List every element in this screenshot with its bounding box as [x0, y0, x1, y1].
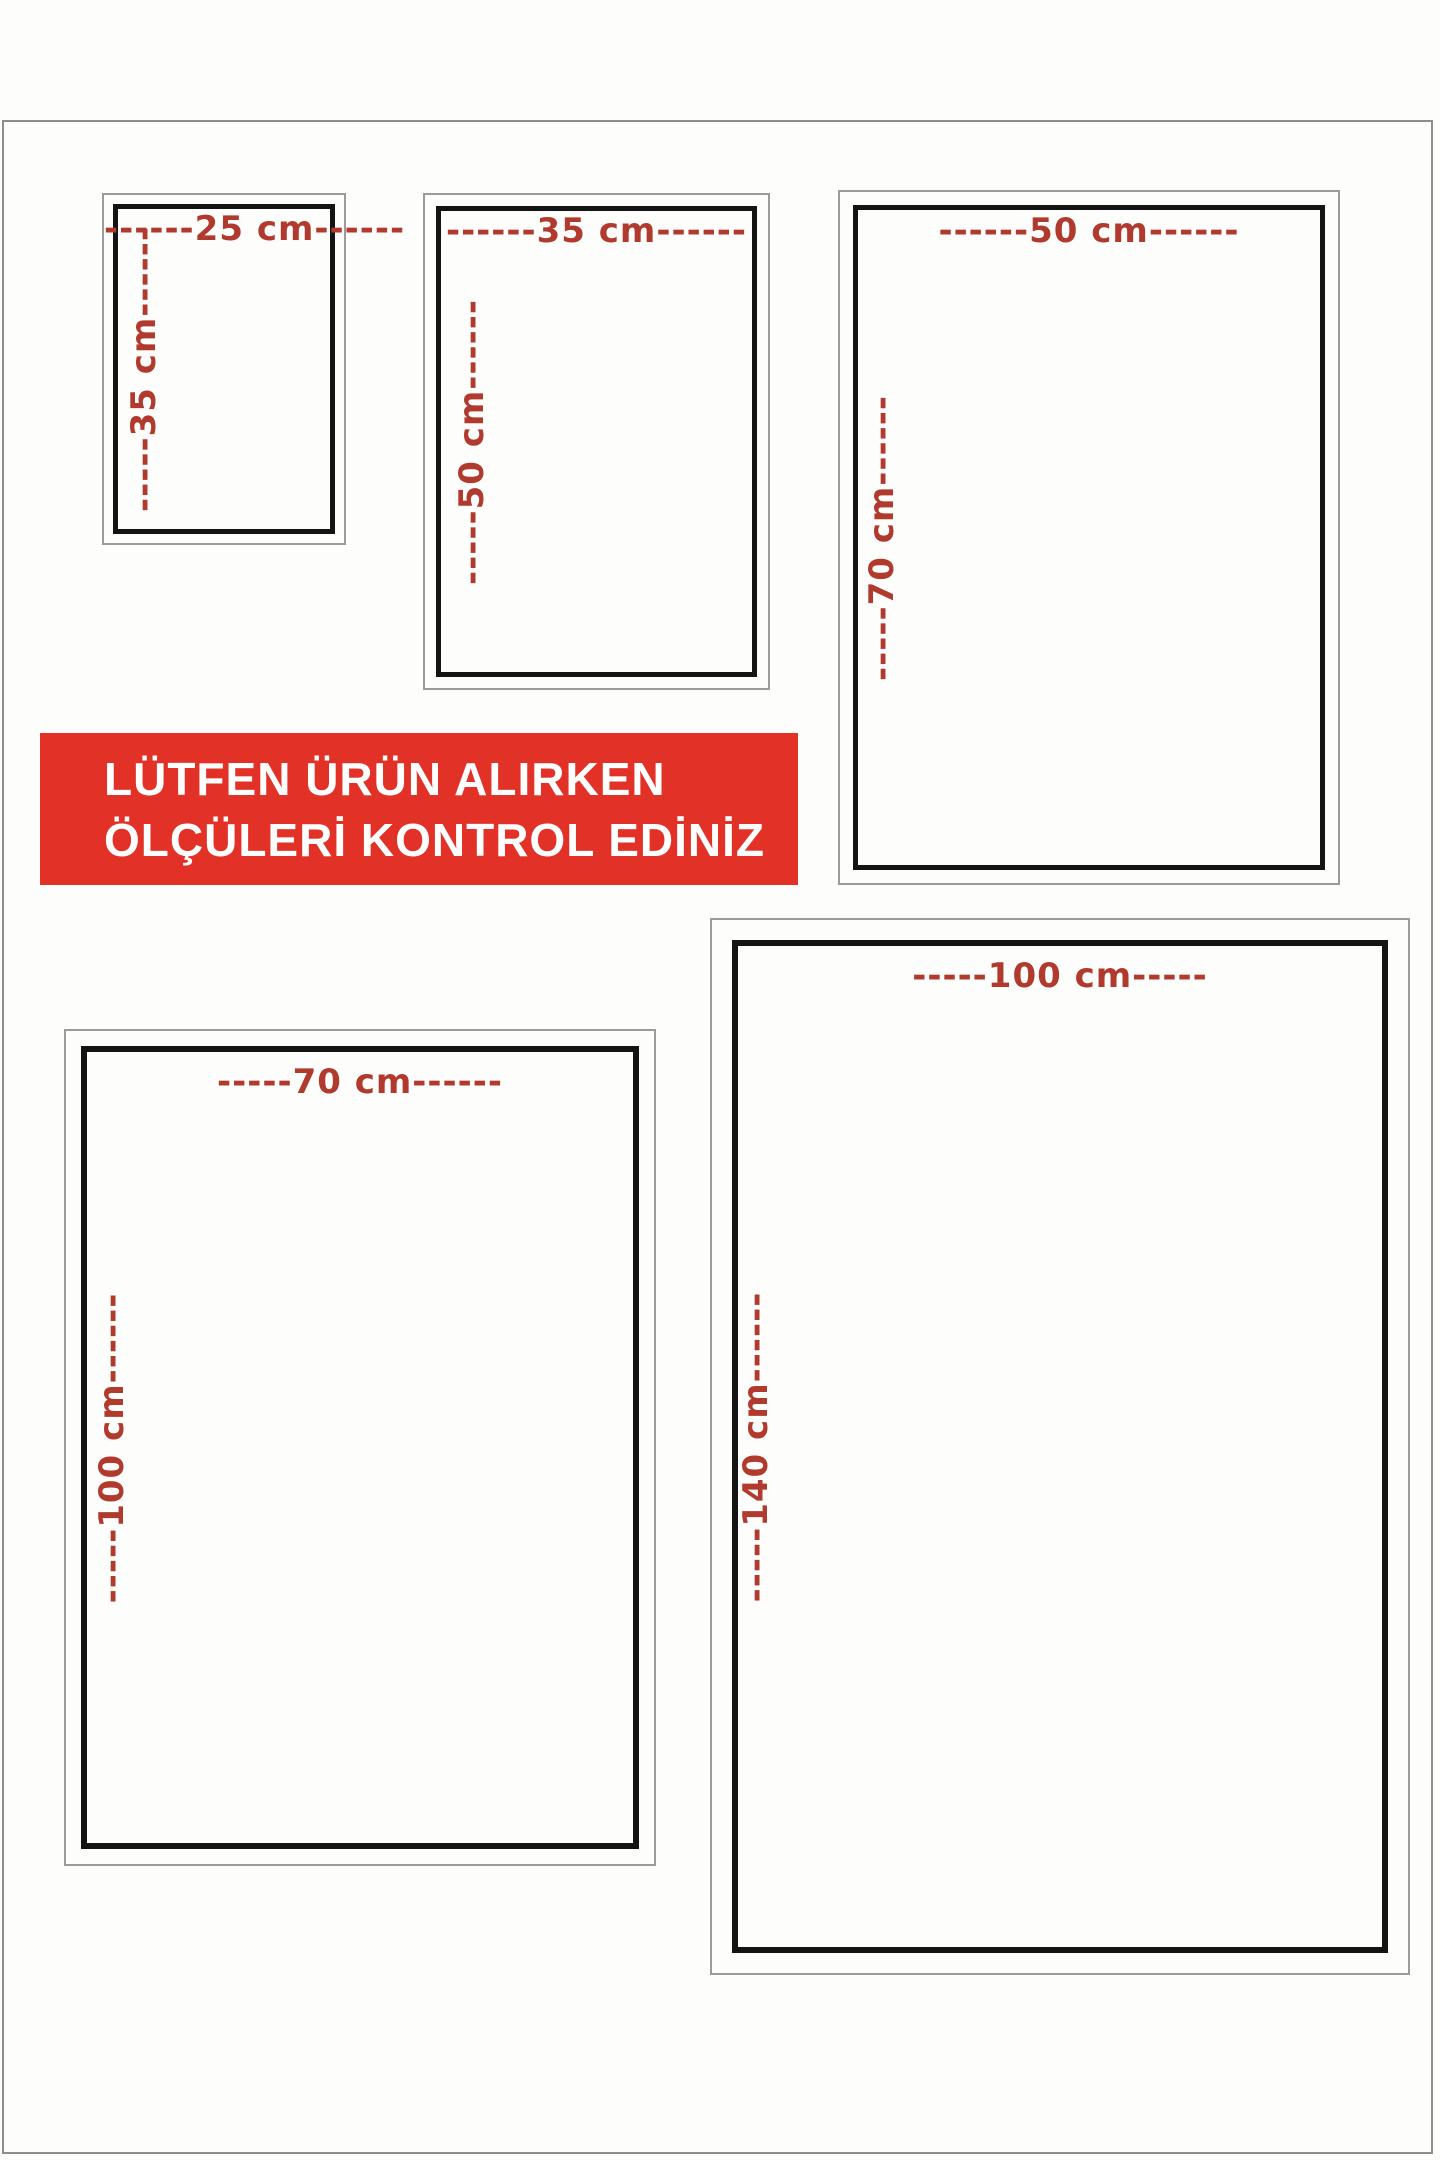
size-box-35x50: ------35 cm------ -----50 cm------	[423, 193, 770, 690]
warning-banner: LÜTFEN ÜRÜN ALIRKEN ÖLÇÜLERİ KONTROL EDİ…	[40, 733, 798, 885]
height-dimension-label: -----100 cm------	[92, 1292, 132, 1603]
width-dimension-label: -----100 cm-----	[712, 956, 1408, 996]
height-dimension-label: -----35 cm------	[124, 226, 164, 512]
warning-banner-line1: LÜTFEN ÜRÜN ALIRKEN	[104, 749, 788, 810]
size-box-70x100: -----70 cm------ -----100 cm------	[64, 1029, 656, 1866]
size-box-25x35: ------25 cm------ -----35 cm------	[102, 193, 346, 545]
height-dimension-label: -----50 cm------	[452, 299, 492, 585]
height-dimension-label: -----140 cm------	[736, 1291, 776, 1602]
size-box-70x100-inner-border	[81, 1046, 639, 1849]
height-dimension-label: -----70 cm------	[862, 395, 902, 681]
size-box-50x70-inner-border	[853, 205, 1325, 870]
size-box-100x140: -----100 cm----- -----140 cm------	[710, 918, 1410, 1975]
warning-banner-line2: ÖLÇÜLERİ KONTROL EDİNİZ	[104, 810, 788, 871]
width-dimension-label: ------50 cm------	[840, 211, 1338, 251]
width-dimension-label: -----70 cm------	[66, 1062, 654, 1102]
size-box-50x70: ------50 cm------ -----70 cm------	[838, 190, 1340, 885]
width-dimension-label: ------35 cm------	[425, 211, 768, 251]
size-chart-page: ------25 cm------ -----35 cm------ -----…	[0, 0, 1440, 2160]
size-box-100x140-inner-border	[732, 940, 1388, 1953]
